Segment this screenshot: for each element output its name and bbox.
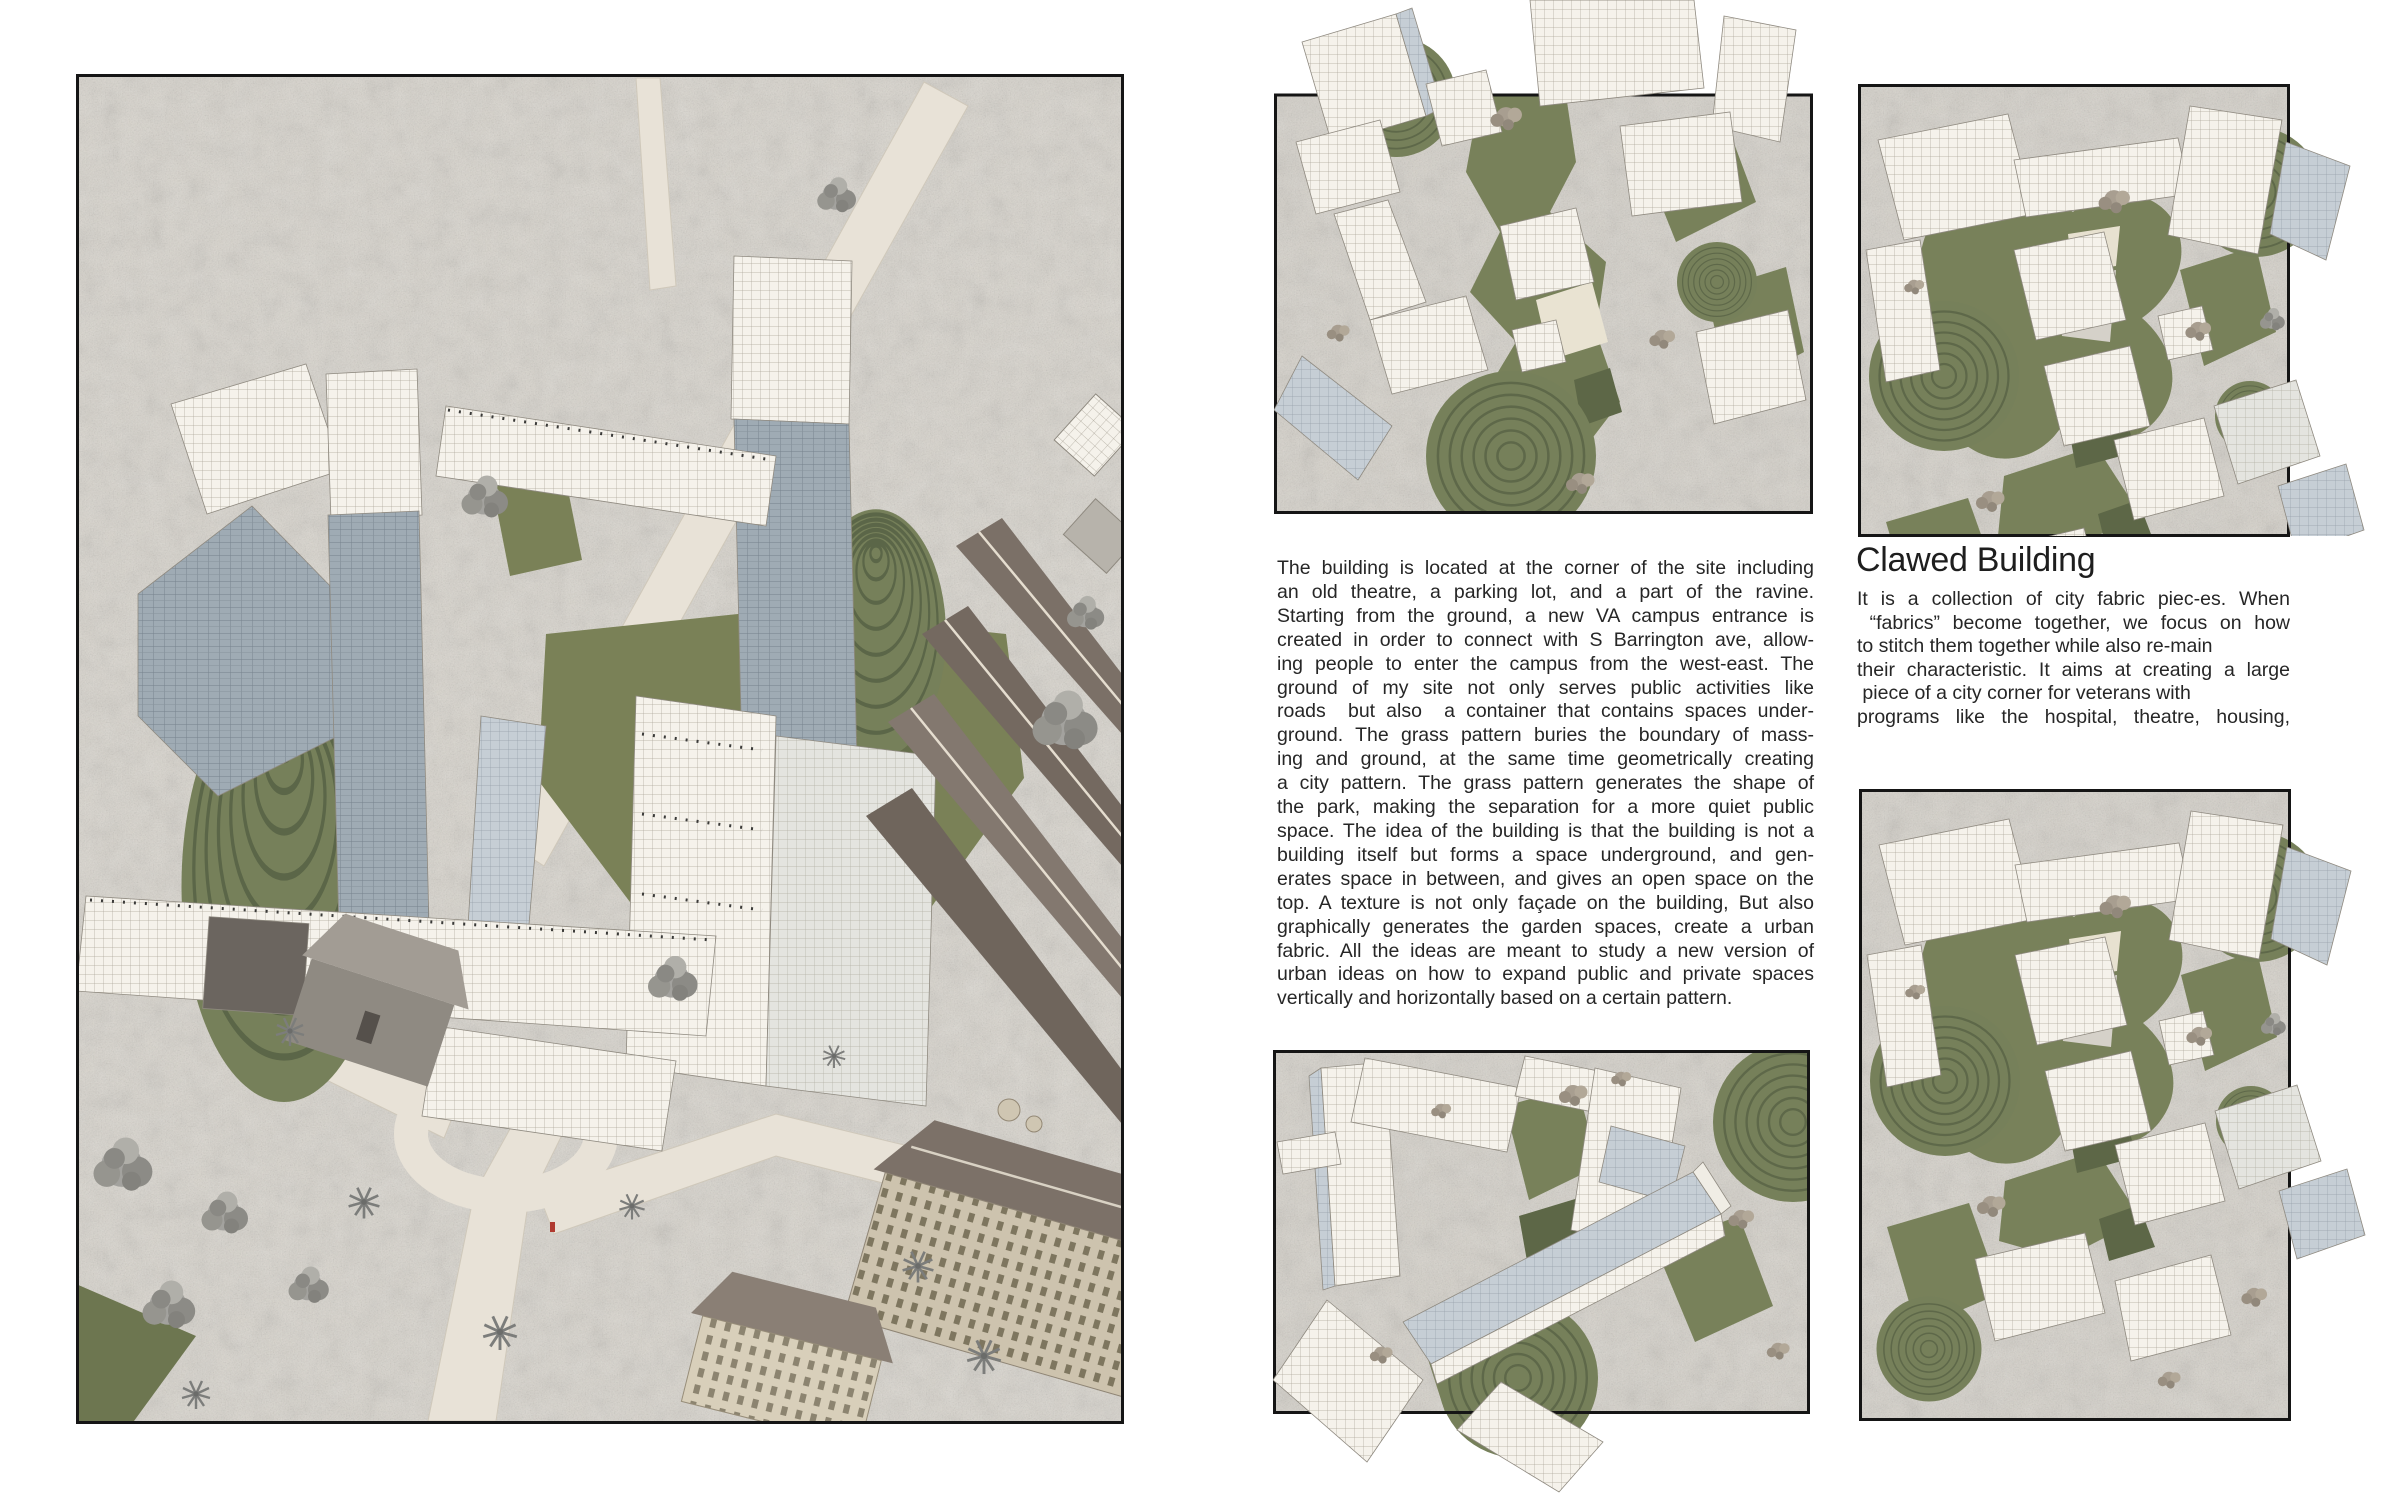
clawed-building-rendering-top — [1858, 0, 2368, 540]
text-line: an old theatre, a parking lot, and a par… — [1277, 581, 1814, 605]
text-line: urban ideas on how to expand public and … — [1277, 963, 1814, 987]
fabric-bars-art — [1273, 1050, 1810, 1500]
clawed-paragraph: It is a collection of city fabric piec-e… — [1857, 588, 2290, 729]
text-line: graphically generates the garden spaces,… — [1277, 916, 1814, 940]
site-aerial-rendering — [76, 74, 1124, 1424]
section-title: Clawed Building — [1856, 541, 2095, 580]
text-line: their characteristic. It aims at creatin… — [1857, 659, 2290, 683]
text-line: to stitch them together while also re-ma… — [1857, 635, 2290, 659]
fabric-study-art — [1274, 0, 1813, 514]
text-line: ground of my site not only serves public… — [1277, 677, 1814, 701]
clawed-building-art-bottom — [1859, 789, 2369, 1429]
text-line: “fabrics” become together, we focus on h… — [1857, 612, 2290, 636]
text-line: piece of a city corner for veterans with — [1857, 682, 2290, 706]
text-line: building itself but forms a space underg… — [1277, 844, 1814, 868]
red-figure — [550, 1222, 555, 1232]
fabric-bars-rendering — [1273, 1050, 1810, 1500]
text-line: programs like the hospital, theatre, hou… — [1857, 706, 2290, 730]
text-line: vertically and horizontally based on a c… — [1277, 987, 1814, 1011]
text-line: space. The idea of the building is that … — [1277, 820, 1814, 844]
text-line: a city pattern. The grass pattern genera… — [1277, 772, 1814, 796]
text-line: roads but also a container that contains… — [1277, 700, 1814, 724]
text-line: The building is located at the corner of… — [1277, 557, 1814, 581]
portfolio-spread: The building is located at the corner of… — [0, 0, 2400, 1500]
text-line: created in order to connect with S Barri… — [1277, 629, 1814, 653]
text-line: the park, making the separation for a mo… — [1277, 796, 1814, 820]
fabric-study-rendering — [1274, 0, 1813, 514]
clawed-building-rendering-bottom — [1859, 789, 2369, 1429]
text-line: ing and ground, at the same time geometr… — [1277, 748, 1814, 772]
cylinder-tower — [998, 1099, 1020, 1121]
cylinder-tower — [1026, 1116, 1042, 1132]
intro-paragraph: The building is located at the corner of… — [1277, 557, 1814, 1011]
text-line: It is a collection of city fabric piec-e… — [1857, 588, 2290, 612]
gateway-opening — [203, 917, 309, 1016]
text-line: ground. The grass pattern buries the bou… — [1277, 724, 1814, 748]
text-line: fabric. All the ideas are meant to study… — [1277, 940, 1814, 964]
text-line: top. A texture is not only façade on the… — [1277, 892, 1814, 916]
clawed-building-art-top — [1858, 0, 2368, 540]
text-line: Starting from the ground, a new VA campu… — [1277, 605, 1814, 629]
text-line: erates space in between, and gives an op… — [1277, 868, 1814, 892]
site-aerial-art — [76, 74, 1124, 1424]
text-line: ing people to enter the campus from the … — [1277, 653, 1814, 677]
